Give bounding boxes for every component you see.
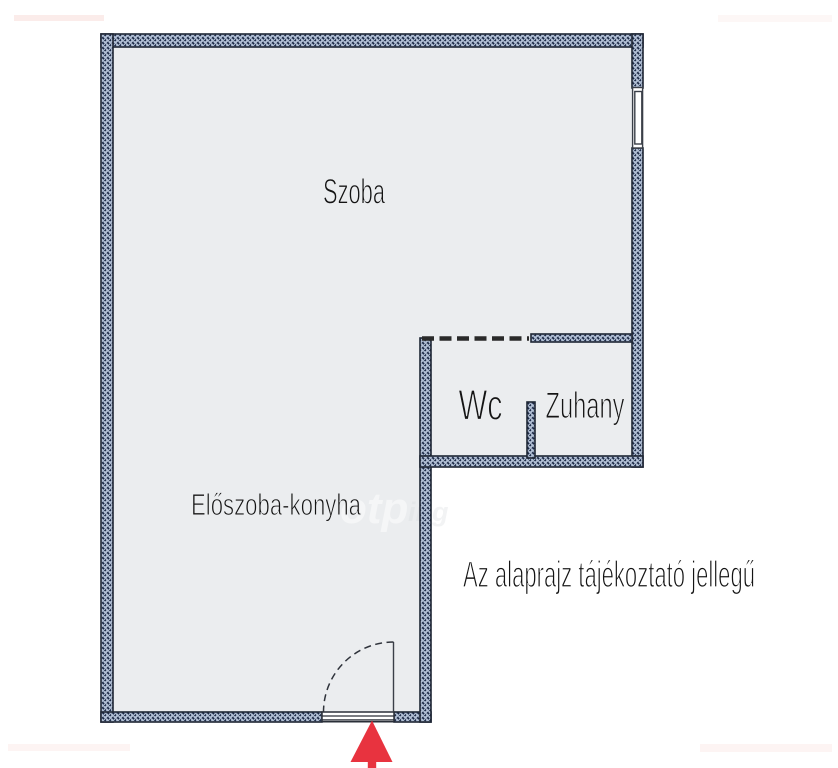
svg-text:Az alaprajz tájékoztató jelleg: Az alaprajz tájékoztató jellegű xyxy=(463,554,755,595)
svg-text:Zuhany: Zuhany xyxy=(546,385,625,426)
svg-text:Szoba: Szoba xyxy=(323,173,385,212)
svg-text:Előszoba-konyha: Előszoba-konyha xyxy=(191,487,362,522)
svg-text:Wc: Wc xyxy=(459,382,503,430)
